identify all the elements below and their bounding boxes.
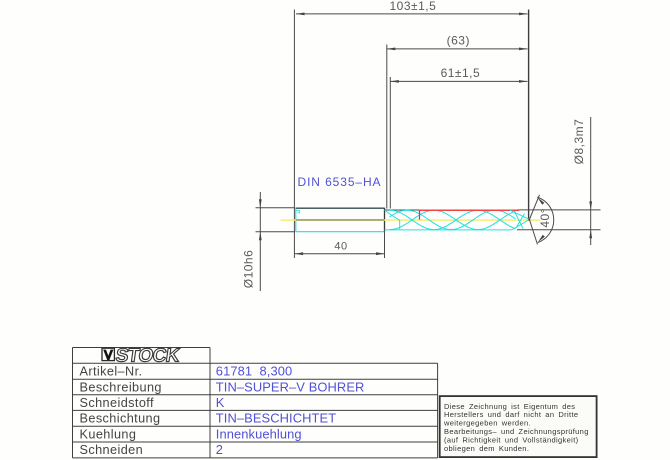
- svg-text:Schneidstoff: Schneidstoff: [80, 396, 154, 410]
- svg-text:103±1,5: 103±1,5: [390, 0, 437, 13]
- svg-text:2: 2: [216, 442, 223, 457]
- svg-text:40: 40: [334, 241, 347, 253]
- svg-text:Kuehlung: Kuehlung: [80, 427, 137, 441]
- svg-text:(63): (63): [447, 34, 470, 48]
- svg-text:Beschreibung: Beschreibung: [80, 380, 162, 394]
- svg-text:K: K: [216, 395, 225, 410]
- svg-text:TIN–BESCHICHTET: TIN–BESCHICHTET: [216, 411, 336, 426]
- svg-text:Artikel–Nr.: Artikel–Nr.: [80, 365, 143, 379]
- svg-text:DIN 6535–HA: DIN 6535–HA: [298, 175, 382, 189]
- svg-text:STOCK: STOCK: [114, 346, 181, 367]
- svg-text:Schneiden: Schneiden: [80, 443, 144, 457]
- svg-text:Ø10h6: Ø10h6: [242, 250, 256, 289]
- svg-text:40°: 40°: [538, 208, 552, 228]
- svg-text:Beschichtung: Beschichtung: [80, 412, 161, 426]
- svg-text:TIN–SUPER–V BOHRER: TIN–SUPER–V BOHRER: [216, 379, 365, 394]
- svg-text:61±1,5: 61±1,5: [441, 66, 481, 80]
- svg-text:Ø8,3m7: Ø8,3m7: [572, 119, 586, 165]
- svg-text:61781 8,300: 61781 8,300: [216, 364, 292, 379]
- svg-text:Innenkuehlung: Innenkuehlung: [216, 426, 302, 441]
- svg-text:obliegen dem Kunden.: obliegen dem Kunden.: [444, 444, 529, 453]
